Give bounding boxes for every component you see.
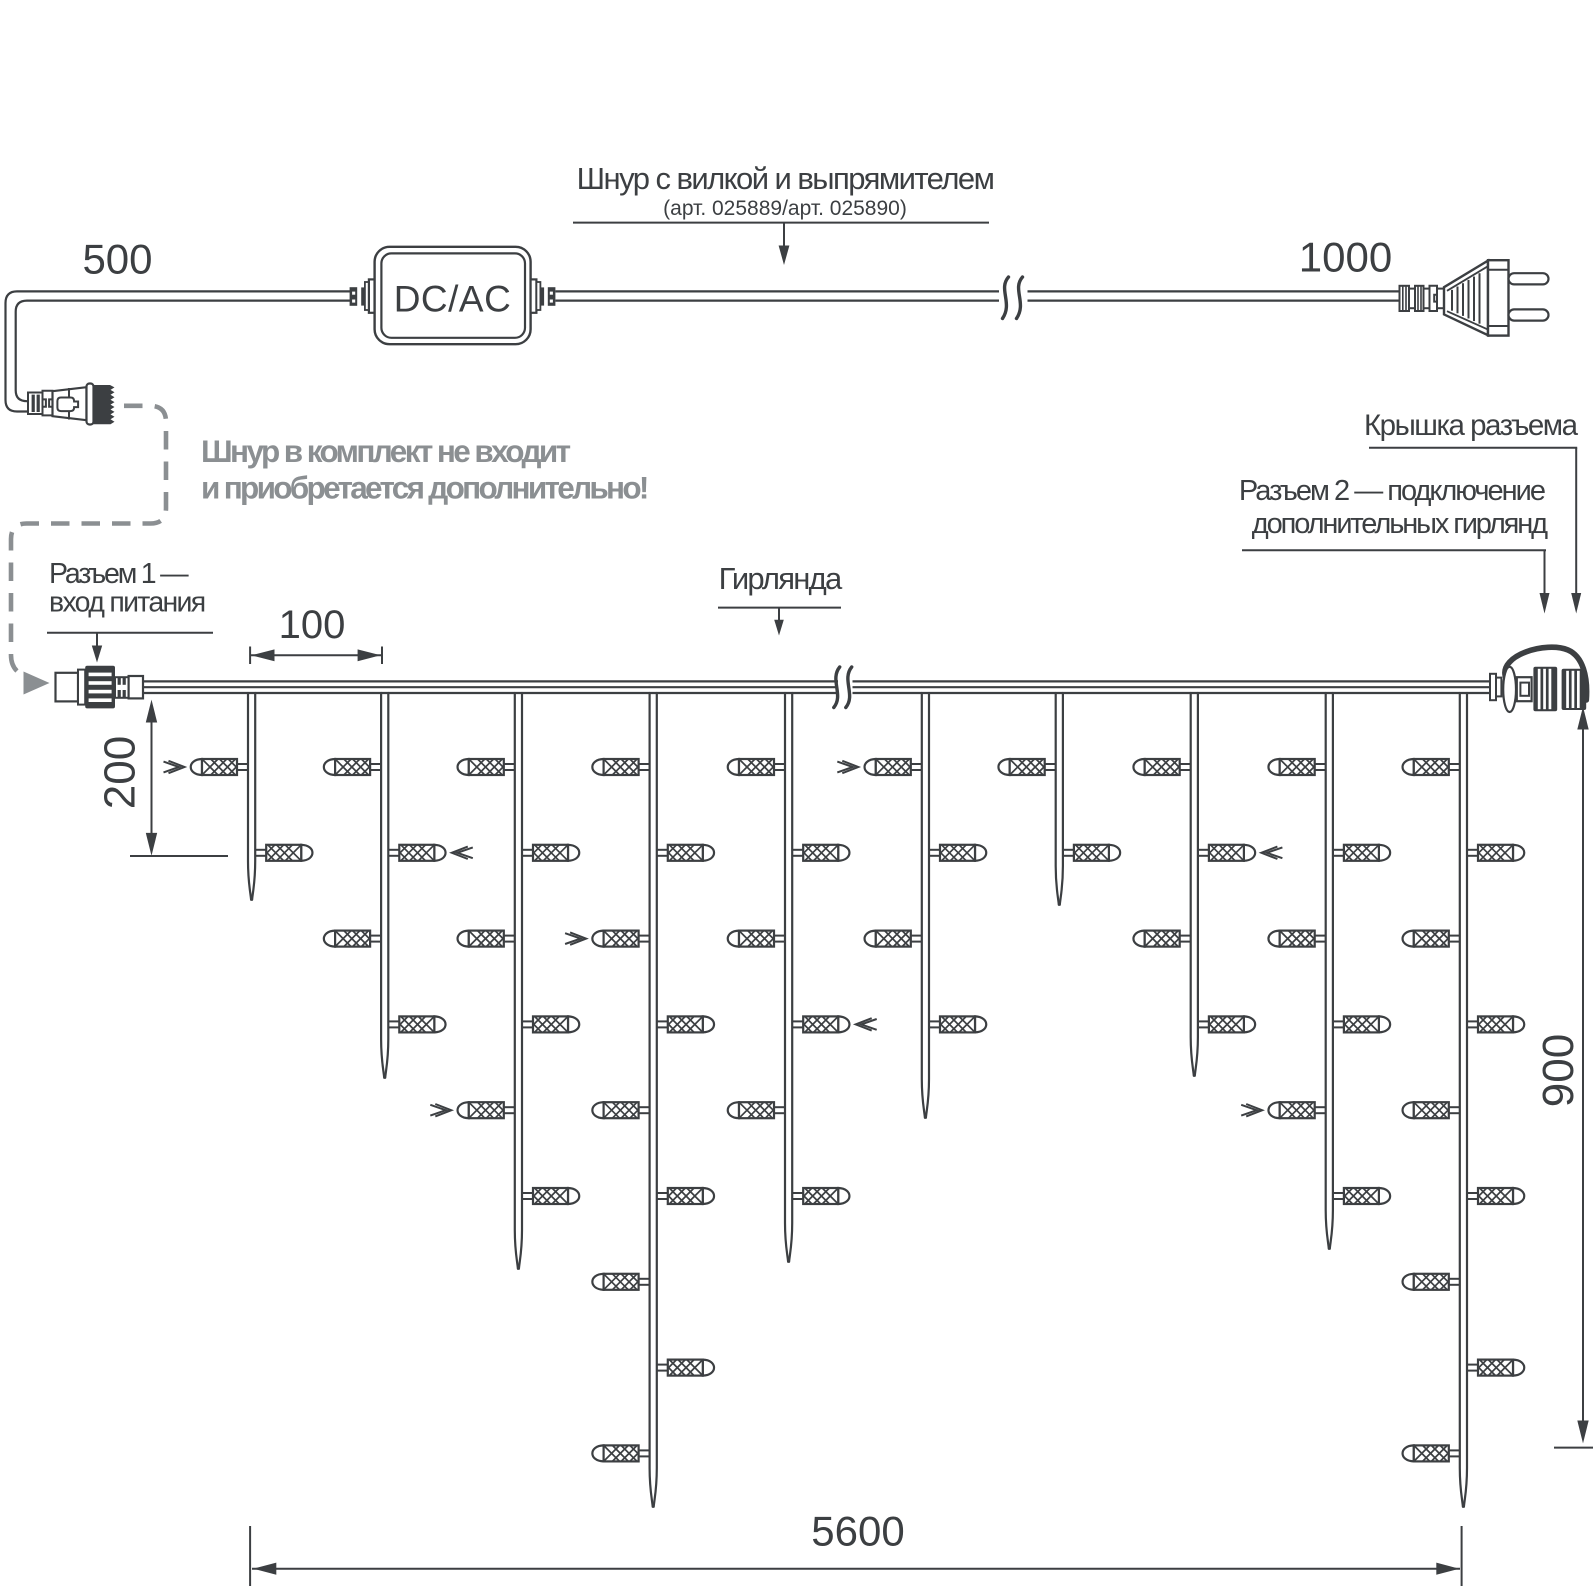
- svg-text:1000: 1000: [1299, 234, 1392, 281]
- svg-text:Гирлянда: Гирлянда: [719, 561, 843, 596]
- svg-text:Крышка разъема: Крышка разъема: [1364, 409, 1579, 442]
- svg-text:Разъем 2 — подключение: Разъем 2 — подключение: [1239, 475, 1545, 507]
- svg-text:200: 200: [96, 736, 145, 809]
- svg-text:900: 900: [1534, 1034, 1583, 1107]
- svg-text:дополнительных гирлянд: дополнительных гирлянд: [1252, 508, 1548, 540]
- svg-text:5600: 5600: [811, 1508, 904, 1555]
- svg-text:и приобретается дополнительно!: и приобретается дополнительно!: [201, 470, 647, 506]
- svg-text:DC/AC: DC/AC: [394, 279, 512, 320]
- svg-text:(арт. 025889/арт. 025890): (арт. 025889/арт. 025890): [663, 197, 907, 220]
- svg-text:Шнур с вилкой и выпрямителем: Шнур с вилкой и выпрямителем: [577, 161, 994, 196]
- svg-text:вход питания: вход питания: [49, 587, 205, 619]
- svg-text:500: 500: [82, 236, 152, 283]
- svg-text:Шнур в комплект не входит: Шнур в комплект не входит: [201, 433, 571, 469]
- svg-text:100: 100: [279, 603, 346, 647]
- svg-text:Разъем 1 —: Разъем 1 —: [49, 558, 189, 590]
